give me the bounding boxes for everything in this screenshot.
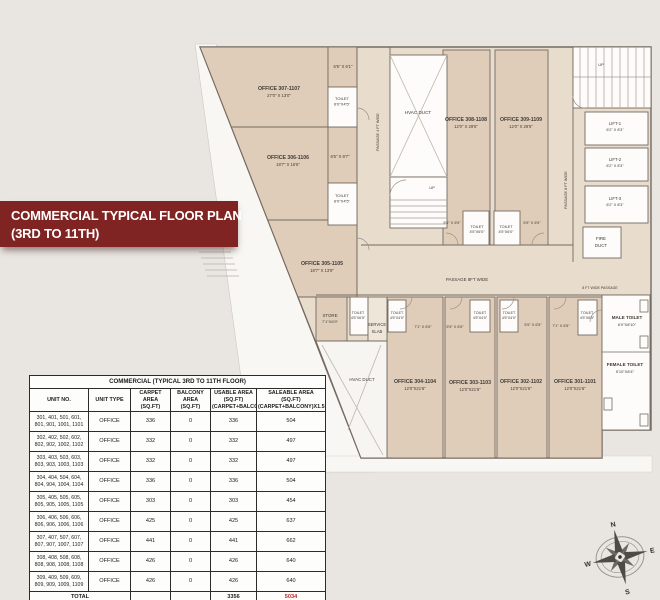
office-303-dim: 12'0"X21'6" bbox=[459, 387, 481, 392]
office-304-name: OFFICE 304-1104 bbox=[394, 379, 436, 385]
female-toilet-dim: 5'10"X8'4" bbox=[616, 369, 635, 374]
fire-duct-line1: FIRE bbox=[596, 236, 606, 241]
toilet-304-name: TOILET bbox=[391, 311, 404, 315]
floor-plan-page: 6'5" X 6'1"OFFICE 307-110727'0" X 13'0"T… bbox=[0, 0, 660, 600]
column-header-3: BALCONY AREA(SQ.FT) bbox=[171, 389, 211, 412]
lift-3-name: LIFT-3 bbox=[609, 196, 622, 201]
table-title: COMMERCIAL (TYPICAL 3RD TO 11TH FLOOR) bbox=[30, 376, 326, 389]
table-row: 305, 405, 505, 605, 805, 905, 1005, 1105… bbox=[30, 492, 326, 512]
compass-rose: N E S W bbox=[577, 514, 660, 600]
title-banner: COMMERCIAL TYPICAL FLOOR PLAN (3RD TO 11… bbox=[0, 201, 238, 247]
office-304-dim: 12'0"X21'6" bbox=[404, 386, 426, 391]
room-toilet-306 bbox=[328, 183, 357, 225]
lift-3-dim: 6'2" X 8'3" bbox=[606, 203, 624, 207]
lift-1-name: LIFT-1 bbox=[609, 121, 622, 126]
table-row: 308, 408, 508, 608, 808, 908, 1008, 1108… bbox=[30, 552, 326, 572]
toilet-301-name: TOILET bbox=[581, 311, 594, 315]
toilet-303-name: TOILET bbox=[474, 311, 487, 315]
compass-s-label: S bbox=[625, 589, 631, 597]
area-statement-table: COMMERCIAL (TYPICAL 3RD TO 11TH FLOOR) U… bbox=[29, 375, 325, 600]
lift-1-dim: 6'2" X 8'3" bbox=[606, 128, 624, 132]
dim-301: 7'1" X 6'5" bbox=[552, 324, 570, 328]
hvac-duct-bottom-label: HVAC DUCT bbox=[349, 377, 375, 382]
male-toilet-dim: 6'0"X8'10" bbox=[618, 322, 637, 327]
compass-e-label: E bbox=[649, 547, 655, 555]
column-header-1: UNIT TYPE bbox=[89, 389, 131, 412]
office-305-dim: 18'7" X 13'9" bbox=[310, 268, 334, 273]
total-balcony bbox=[171, 592, 211, 600]
total-usable: 3356 bbox=[211, 592, 257, 600]
toilet-307-dim: 6'0"X4'5" bbox=[334, 102, 351, 107]
office-301-dim: 12'0"X21'6" bbox=[564, 386, 586, 391]
total-carpet bbox=[131, 592, 171, 600]
stairs-mid-up-label: UP bbox=[429, 185, 435, 190]
room-toilet-307 bbox=[328, 87, 357, 127]
service-slab-line2: SLAB bbox=[372, 329, 383, 334]
toilet-308-dim: 4'5"X6'0" bbox=[469, 230, 485, 234]
office-308-dim: 12'0" X 29'5" bbox=[454, 124, 478, 129]
lift-2-name: LIFT-2 bbox=[609, 157, 622, 162]
toilet-306-name: TOILET bbox=[335, 193, 349, 198]
male-toilet-name: MALE TOILET bbox=[612, 315, 643, 320]
dim-307-nook: 6'5" X 6'1" bbox=[333, 64, 353, 69]
office-307-dim: 27'0" X 13'0" bbox=[267, 93, 291, 98]
office-302-dim: 12'0"X21'6" bbox=[510, 386, 532, 391]
female-toilet-name: FEMALE TOILET bbox=[607, 362, 644, 367]
dim-304: 7'1" X 6'5" bbox=[414, 325, 432, 329]
room-service-slab bbox=[368, 297, 387, 341]
toilet-306-dim: 6'0"X4'5" bbox=[334, 199, 351, 204]
fire-duct-line2: DUCT bbox=[595, 243, 608, 248]
office-306-name: OFFICE 306-1106 bbox=[267, 155, 309, 161]
toilet-store-name: TOILET bbox=[352, 311, 365, 315]
toilet-302-dim: 4'5"X4'0" bbox=[502, 316, 517, 320]
table-row: 304, 404, 504, 604, 804, 904, 1004, 1104… bbox=[30, 472, 326, 492]
compass-w-label: W bbox=[584, 561, 592, 569]
toilet-309-dim: 4'5"X6'0" bbox=[498, 230, 514, 234]
column-header-4: USABLE AREA (SQ.FT)(CARPET+BALCONY) bbox=[211, 389, 257, 412]
table-total-row: TOTAL 3356 5034 bbox=[30, 592, 326, 600]
toilet-307-name: TOILET bbox=[335, 96, 349, 101]
toilet-304-dim: 4'5"X4'0" bbox=[390, 316, 405, 320]
dim-303: 5'5" X 6'5" bbox=[446, 325, 464, 329]
total-saleable: 5034 bbox=[257, 592, 326, 600]
office-308-name: OFFICE 308-1108 bbox=[445, 117, 487, 123]
title-line-2: (3RD TO 11TH) bbox=[11, 225, 228, 243]
passage-4ft-label: PASSAGE 4 FT WIDE bbox=[376, 113, 380, 151]
office-309-dim: 12'0" X 29'5" bbox=[509, 124, 533, 129]
office-307-name: OFFICE 307-1107 bbox=[258, 86, 300, 92]
passage-8ft-vert-label: PASSAGE 8 FT WIDE bbox=[564, 171, 568, 209]
office-301-name: OFFICE 301-1101 bbox=[554, 379, 596, 385]
column-header-2: CARPET AREA(SQ.FT) bbox=[131, 389, 171, 412]
office-306-dim: 18'7" X 16'5" bbox=[276, 162, 300, 167]
office-309-name: OFFICE 309-1109 bbox=[500, 117, 542, 123]
total-label: TOTAL bbox=[30, 592, 131, 600]
dim-309-right: 5'5" X 6'5" bbox=[523, 221, 541, 225]
service-slab-line1: SERVICE bbox=[368, 322, 387, 327]
table-row: 303, 403, 503, 603, 803, 903, 1003, 1103… bbox=[30, 452, 326, 472]
toilet-308-name: TOILET bbox=[470, 225, 484, 229]
table-row: 302, 402, 502, 602, 802, 902, 1002, 1102… bbox=[30, 432, 326, 452]
column-header-5: SALEABLE AREA (SQ.FT)(CARPET+BALCONY)X1.… bbox=[257, 389, 326, 412]
store-name: STORE bbox=[322, 313, 337, 318]
office-305-name: OFFICE 305-1105 bbox=[301, 261, 343, 267]
dim-306-nook: 6'5" X 9'7" bbox=[330, 154, 350, 159]
title-line-1: COMMERCIAL TYPICAL FLOOR PLAN bbox=[11, 207, 228, 225]
toilet-303-dim: 4'5"X4'0" bbox=[473, 316, 488, 320]
table-row: 301, 401, 501, 601, 801, 901, 1001, 1101… bbox=[30, 412, 326, 432]
passage-8ft-horiz-label: PASSAGE 8FT WIDE bbox=[446, 277, 488, 282]
compass-n-label: N bbox=[610, 521, 616, 529]
table-row: 309, 409, 509, 609, 809, 909, 1009, 1109… bbox=[30, 572, 326, 592]
passage-8ft-right-label: 8 FT WIDE PASSAGE bbox=[582, 286, 618, 290]
toilet-301-dim: 4'5"X6'5" bbox=[580, 316, 595, 320]
stairs-top-up-label: UP bbox=[598, 62, 604, 67]
office-302-name: OFFICE 302-1102 bbox=[500, 379, 542, 385]
column-header-0: UNIT NO. bbox=[30, 389, 89, 412]
office-303-name: OFFICE 303-1103 bbox=[449, 380, 491, 386]
toilet-store-dim: 4'5"X6'5" bbox=[351, 316, 366, 320]
store-dim: 7'1"X6'9" bbox=[322, 319, 339, 324]
dim-308-left: 5'5" X 6'5" bbox=[443, 221, 461, 225]
table-row: 306, 406, 506, 606, 806, 906, 1006, 1106… bbox=[30, 512, 326, 532]
hvac-duct-top-label: HVAC DUCT bbox=[405, 110, 432, 115]
room-stairs-mid bbox=[390, 177, 447, 228]
lift-2-dim: 6'2" X 8'3" bbox=[606, 164, 624, 168]
toilet-302-name: TOILET bbox=[503, 311, 516, 315]
table-row: 307, 407, 507, 607, 807, 907, 1007, 1107… bbox=[30, 532, 326, 552]
dim-302: 5'5" X 6'5" bbox=[524, 323, 542, 327]
toilet-309-name: TOILET bbox=[499, 225, 513, 229]
